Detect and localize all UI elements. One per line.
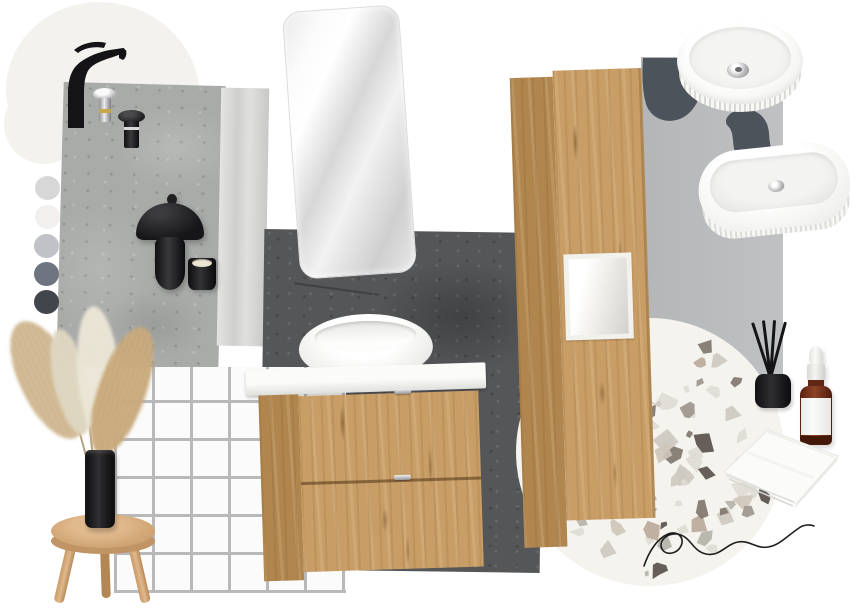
palette-swatch-3 [34,234,59,258]
oval-fluted-basin [695,138,860,248]
moodboard-canvas [0,0,860,613]
round-fluted-basin [677,18,803,114]
drawer-handle [394,475,411,481]
reed-diffuser [752,318,798,410]
palette-swatch-2 [35,205,60,229]
black-vase [85,450,115,528]
stool-leg [128,545,151,604]
cabinet-open-shelf [563,252,634,340]
chrome-popup-waste [93,88,117,122]
wall-mirror [282,4,417,280]
lamp-base [155,237,185,290]
drawer-handle [394,389,411,395]
lamp-shade [136,203,204,240]
vanity-unit [244,308,494,585]
tall-oak-cabinet [507,64,654,554]
stool-leg [54,547,76,604]
dropper-bulb [809,346,823,366]
drawer-seam [301,476,481,485]
vanity-side-panel [258,394,304,581]
palette-swatch-4 [34,262,59,286]
waste-band [124,127,139,130]
signature-squiggle [640,514,822,574]
basin-interior [689,27,791,89]
palette-swatch-5 [34,290,59,314]
candle-wax [192,259,212,267]
brass-band [99,109,111,113]
black-candle-cup [188,256,216,290]
pampas-grass [14,300,179,468]
black-popup-waste [118,110,145,148]
cabinet-shelf-interior [568,258,628,336]
diffuser-vessel [755,374,791,408]
waste-stem [124,121,139,148]
basin-drain-hole [735,67,742,72]
vanity-drawer-front [298,391,483,573]
stone-panel-sample [217,88,269,347]
concrete-crack [294,282,379,296]
palette-swatch-1 [35,176,60,200]
folded-towel [716,418,846,510]
dropper-collar [807,364,825,381]
